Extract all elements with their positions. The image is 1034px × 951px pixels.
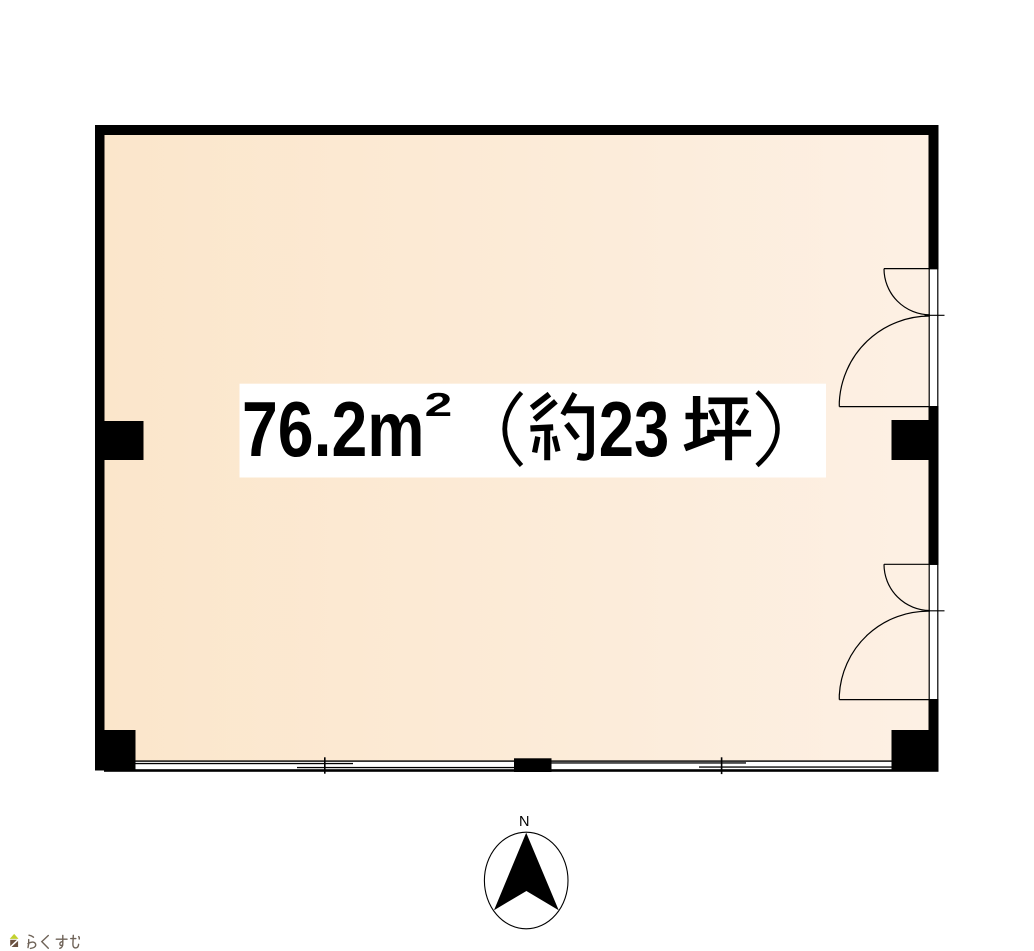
svg-text:2: 2 [425,386,453,423]
svg-text:23: 23 [599,385,670,473]
svg-text:N: N [519,814,529,830]
svg-text:76.2m: 76.2m [242,385,425,473]
